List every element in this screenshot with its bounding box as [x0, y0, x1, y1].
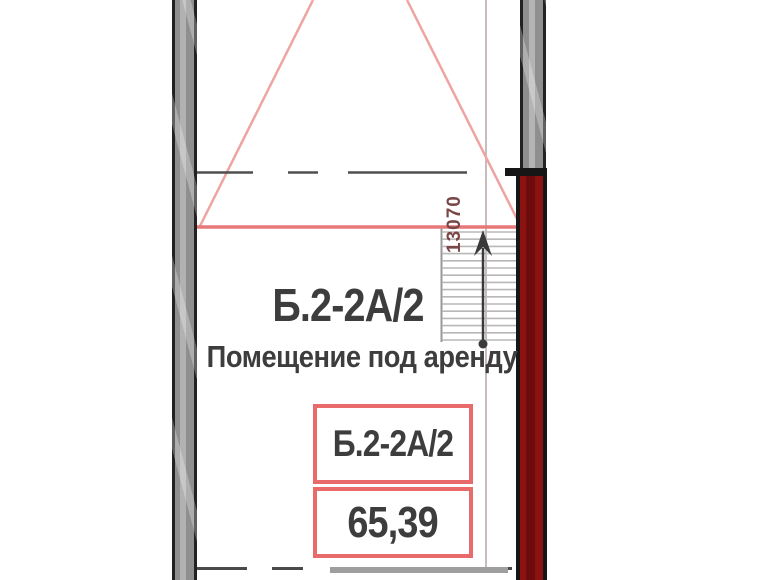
unit-code-title: Б.2-2А/2 [262, 278, 434, 332]
label-box-unit-cell: Б.2-2А/2 [313, 404, 473, 484]
red-diagonal-left [200, 0, 313, 226]
floor-plan-drawing: 13070 Б.2-2А/2 Помещение под аренду Б.2-… [0, 0, 780, 580]
unit-description: Помещение под аренду [186, 339, 538, 375]
label-box-area-value: 65,39 [348, 498, 438, 548]
wall-left [172, 0, 197, 580]
wall-right-upper [520, 0, 546, 172]
wall-right-highlighted [516, 170, 547, 580]
label-box-area-cell: 65,39 [313, 487, 473, 558]
wall-right-cap [505, 168, 547, 176]
unit-label-box: Б.2-2А/2 65,39 [313, 404, 473, 558]
label-box-unit-code: Б.2-2А/2 [333, 423, 453, 465]
stair-dimension-label: 13070 [443, 186, 467, 262]
